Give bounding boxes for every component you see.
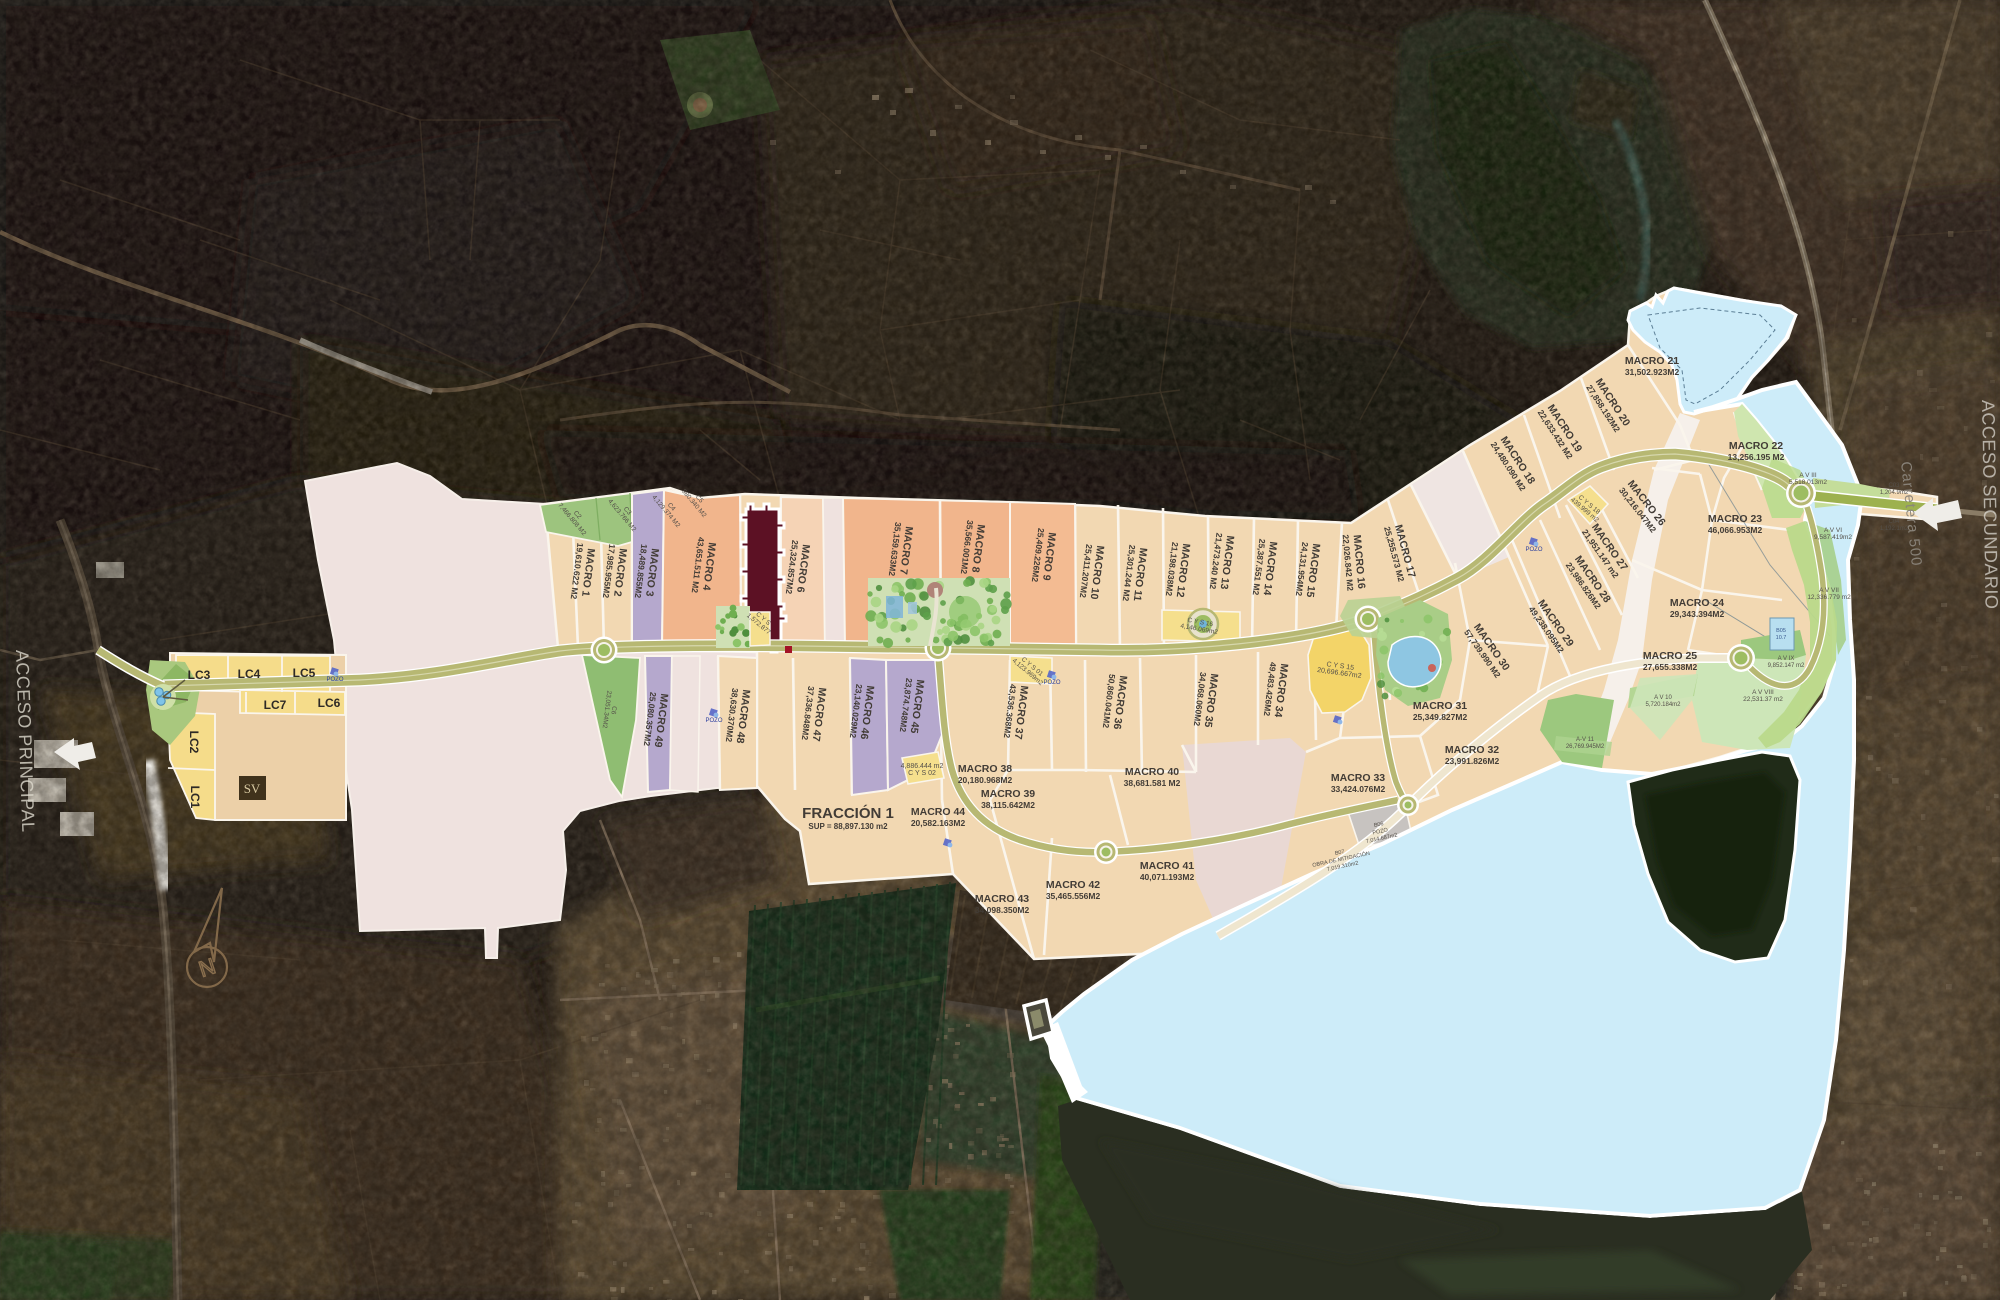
svg-text:4,886.444 m2: 4,886.444 m2 xyxy=(901,763,944,770)
svg-text:31,502.923M2: 31,502.923M2 xyxy=(1625,367,1680,377)
svg-text:25,349.827M2: 25,349.827M2 xyxy=(1413,712,1468,722)
svg-text:MACRO 43: MACRO 43 xyxy=(975,893,1029,905)
svg-text:MACRO 44: MACRO 44 xyxy=(911,806,965,818)
svg-text:5,518.013m2: 5,518.013m2 xyxy=(1789,479,1827,486)
svg-text:MACRO 24: MACRO 24 xyxy=(1670,597,1724,609)
svg-text:MACRO 22: MACRO 22 xyxy=(1729,440,1783,452)
svg-text:MACRO 23: MACRO 23 xyxy=(1708,513,1762,525)
svg-text:MACRO 38: MACRO 38 xyxy=(958,763,1012,775)
svg-text:A V IX: A V IX xyxy=(1778,656,1795,662)
svg-text:20,582.163M2: 20,582.163M2 xyxy=(911,818,966,828)
svg-text:MACRO 31: MACRO 31 xyxy=(1413,700,1467,712)
svg-text:LC5: LC5 xyxy=(293,666,316,680)
svg-text:40,071.193M2: 40,071.193M2 xyxy=(1140,872,1195,882)
svg-text:29,343.394M2: 29,343.394M2 xyxy=(1670,609,1725,619)
svg-text:MACRO 40: MACRO 40 xyxy=(1125,766,1179,778)
svg-text:LC2: LC2 xyxy=(187,731,201,754)
svg-text:A-V 11: A-V 11 xyxy=(1576,737,1595,743)
svg-text:35,465.556M2: 35,465.556M2 xyxy=(1046,891,1101,901)
svg-text:12,336.779 m2: 12,336.779 m2 xyxy=(1807,594,1851,601)
svg-text:MACRO 21: MACRO 21 xyxy=(1625,355,1679,367)
svg-text:LC7: LC7 xyxy=(264,698,287,712)
svg-text:MACRO 41: MACRO 41 xyxy=(1140,860,1194,872)
svg-text:LC1: LC1 xyxy=(188,786,202,809)
svg-text:A V III: A V III xyxy=(1799,472,1817,479)
svg-text:A V 10: A V 10 xyxy=(1654,695,1672,701)
svg-text:26,769.945M2: 26,769.945M2 xyxy=(1566,744,1605,750)
svg-text:38,681.581 M2: 38,681.581 M2 xyxy=(1124,778,1181,788)
svg-text:SV: SV xyxy=(244,781,261,796)
svg-text:POZO: POZO xyxy=(326,677,343,683)
svg-text:MACRO 25: MACRO 25 xyxy=(1643,650,1697,662)
svg-text:38,115.642M2: 38,115.642M2 xyxy=(981,800,1035,810)
svg-text:C03: C03 xyxy=(1888,483,1900,489)
svg-text:23,991.826M2: 23,991.826M2 xyxy=(1445,756,1500,766)
svg-text:FRACCIÓN 1: FRACCIÓN 1 xyxy=(802,804,894,822)
svg-text:9,852.147 m2: 9,852.147 m2 xyxy=(1768,663,1805,669)
svg-text:22,531.37 m2: 22,531.37 m2 xyxy=(1743,696,1783,703)
svg-text:MACRO 39: MACRO 39 xyxy=(981,788,1035,800)
svg-text:5,720.184m2: 5,720.184m2 xyxy=(1645,702,1681,708)
svg-text:MACRO 32: MACRO 32 xyxy=(1445,744,1499,756)
svg-text:B05: B05 xyxy=(1776,628,1786,634)
svg-text:ACCESO SECUNDARIO: ACCESO SECUNDARIO xyxy=(1978,400,2000,610)
svg-text:POZO: POZO xyxy=(705,718,722,724)
svg-text:MACRO 33: MACRO 33 xyxy=(1331,772,1385,784)
svg-text:27,655.338M2: 27,655.338M2 xyxy=(1643,662,1698,672)
svg-text:LC3: LC3 xyxy=(188,668,211,682)
svg-text:SUP = 88,897.130 m2: SUP = 88,897.130 m2 xyxy=(808,822,888,831)
svg-text:20,180.968M2: 20,180.968M2 xyxy=(958,775,1013,785)
svg-text:LC4: LC4 xyxy=(238,667,261,681)
svg-text:A V VII: A V VII xyxy=(1819,587,1839,594)
svg-text:13,256.195 M2: 13,256.195 M2 xyxy=(1728,452,1785,462)
svg-text:33,424.076M2: 33,424.076M2 xyxy=(1331,784,1386,794)
svg-text:C04: C04 xyxy=(1888,519,1900,525)
svg-text:A V VI: A V VI xyxy=(1824,527,1842,534)
svg-text:A V VIII: A V VIII xyxy=(1752,689,1774,696)
svg-text:MACRO 42: MACRO 42 xyxy=(1046,879,1100,891)
svg-text:46,066.953M2: 46,066.953M2 xyxy=(1708,525,1763,535)
svg-text:10.7: 10.7 xyxy=(1776,635,1787,641)
svg-text:LC6: LC6 xyxy=(318,696,341,710)
svg-text:34,098.350M2: 34,098.350M2 xyxy=(975,905,1030,915)
svg-text:C Y S 02: C Y S 02 xyxy=(908,770,936,777)
svg-text:POZO: POZO xyxy=(1525,547,1542,553)
svg-text:POZO: POZO xyxy=(1043,680,1060,686)
svg-text:9,587.419m2: 9,587.419m2 xyxy=(1814,534,1852,541)
